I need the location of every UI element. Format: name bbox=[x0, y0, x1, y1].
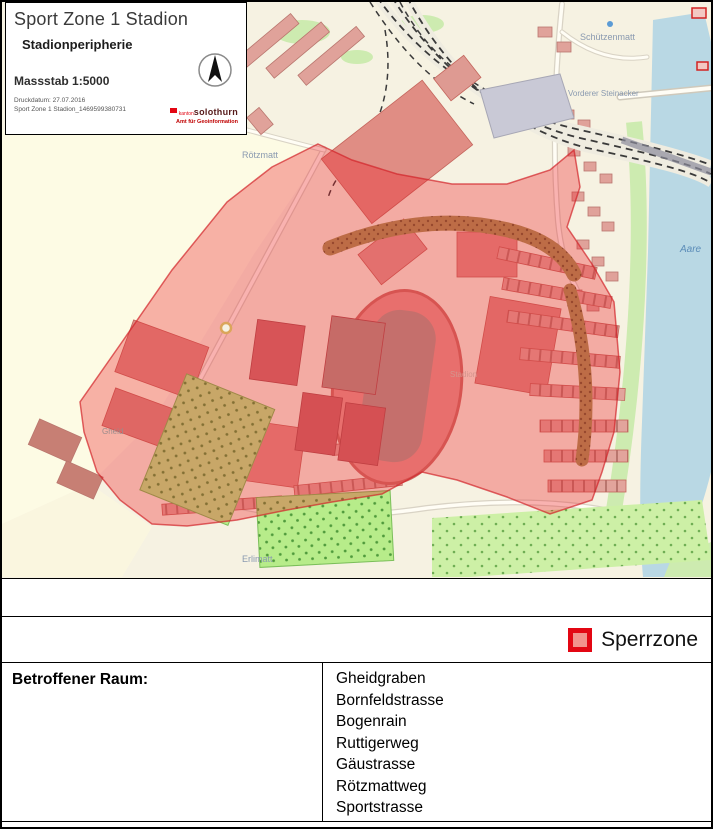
document-page: Rötzmatt Schützenmatt Vorderer Steinacke… bbox=[0, 0, 713, 829]
street-item: Gäustrasse bbox=[336, 754, 711, 776]
map-label-vorderer-steinacker: Vorderer Steinacker bbox=[568, 89, 639, 98]
map-title-box: Sport Zone 1 Stadion Stadionperipherie M… bbox=[5, 2, 247, 135]
canton-logo-mark bbox=[170, 108, 177, 113]
canton-logo-name: solothurn bbox=[194, 107, 238, 117]
poi-icon bbox=[607, 21, 613, 27]
map-section: Rötzmatt Schützenmatt Vorderer Steinacke… bbox=[2, 2, 711, 579]
sperrzone-swatch-icon bbox=[568, 628, 592, 652]
canton-logo-department: Amt für Geoinformation bbox=[170, 118, 238, 126]
map-subtitle: Stadionperipherie bbox=[22, 37, 238, 52]
street-item: Sportstrasse bbox=[336, 797, 711, 819]
canton-logo-prefix: kanton bbox=[179, 111, 194, 117]
street-item: Bogenrain bbox=[336, 711, 711, 733]
map-label-stadion: Stadion bbox=[450, 370, 477, 379]
map-title: Sport Zone 1 Stadion bbox=[14, 9, 238, 30]
canton-logo: kantonsolothurn Amt für Geoinformation bbox=[170, 107, 238, 126]
spacer-row bbox=[2, 579, 711, 617]
roundabout bbox=[221, 323, 231, 333]
north-arrow-icon bbox=[196, 51, 234, 89]
affected-area-label: Betroffener Raum: bbox=[12, 671, 316, 689]
street-item: Ruttigerweg bbox=[336, 733, 711, 755]
street-item: Gheidgraben bbox=[336, 668, 711, 690]
map-label-erlimatt: Erlimatt bbox=[242, 554, 273, 564]
street-item: Bornfeldstrasse bbox=[336, 690, 711, 712]
affected-area-table: Betroffener Raum: Gheidgraben Bornfeldst… bbox=[2, 663, 711, 822]
map-label-schuetzenmatt: Schützenmatt bbox=[580, 32, 636, 42]
map-label-roetzmatt: Rötzmatt bbox=[242, 150, 279, 160]
street-item: Rötzmattweg bbox=[336, 776, 711, 798]
map-label-aare: Aare bbox=[679, 244, 702, 255]
map-label-gheid: Gheid bbox=[102, 427, 123, 436]
legend-row: Sperrzone bbox=[2, 617, 711, 663]
affected-area-header-cell: Betroffener Raum: bbox=[2, 663, 322, 821]
affected-area-streets-cell: Gheidgraben Bornfeldstrasse Bogenrain Ru… bbox=[322, 663, 711, 821]
sperrzone-label: Sperrzone bbox=[601, 628, 698, 652]
print-date: Druckdatum: 27.07.2016 bbox=[14, 96, 238, 105]
